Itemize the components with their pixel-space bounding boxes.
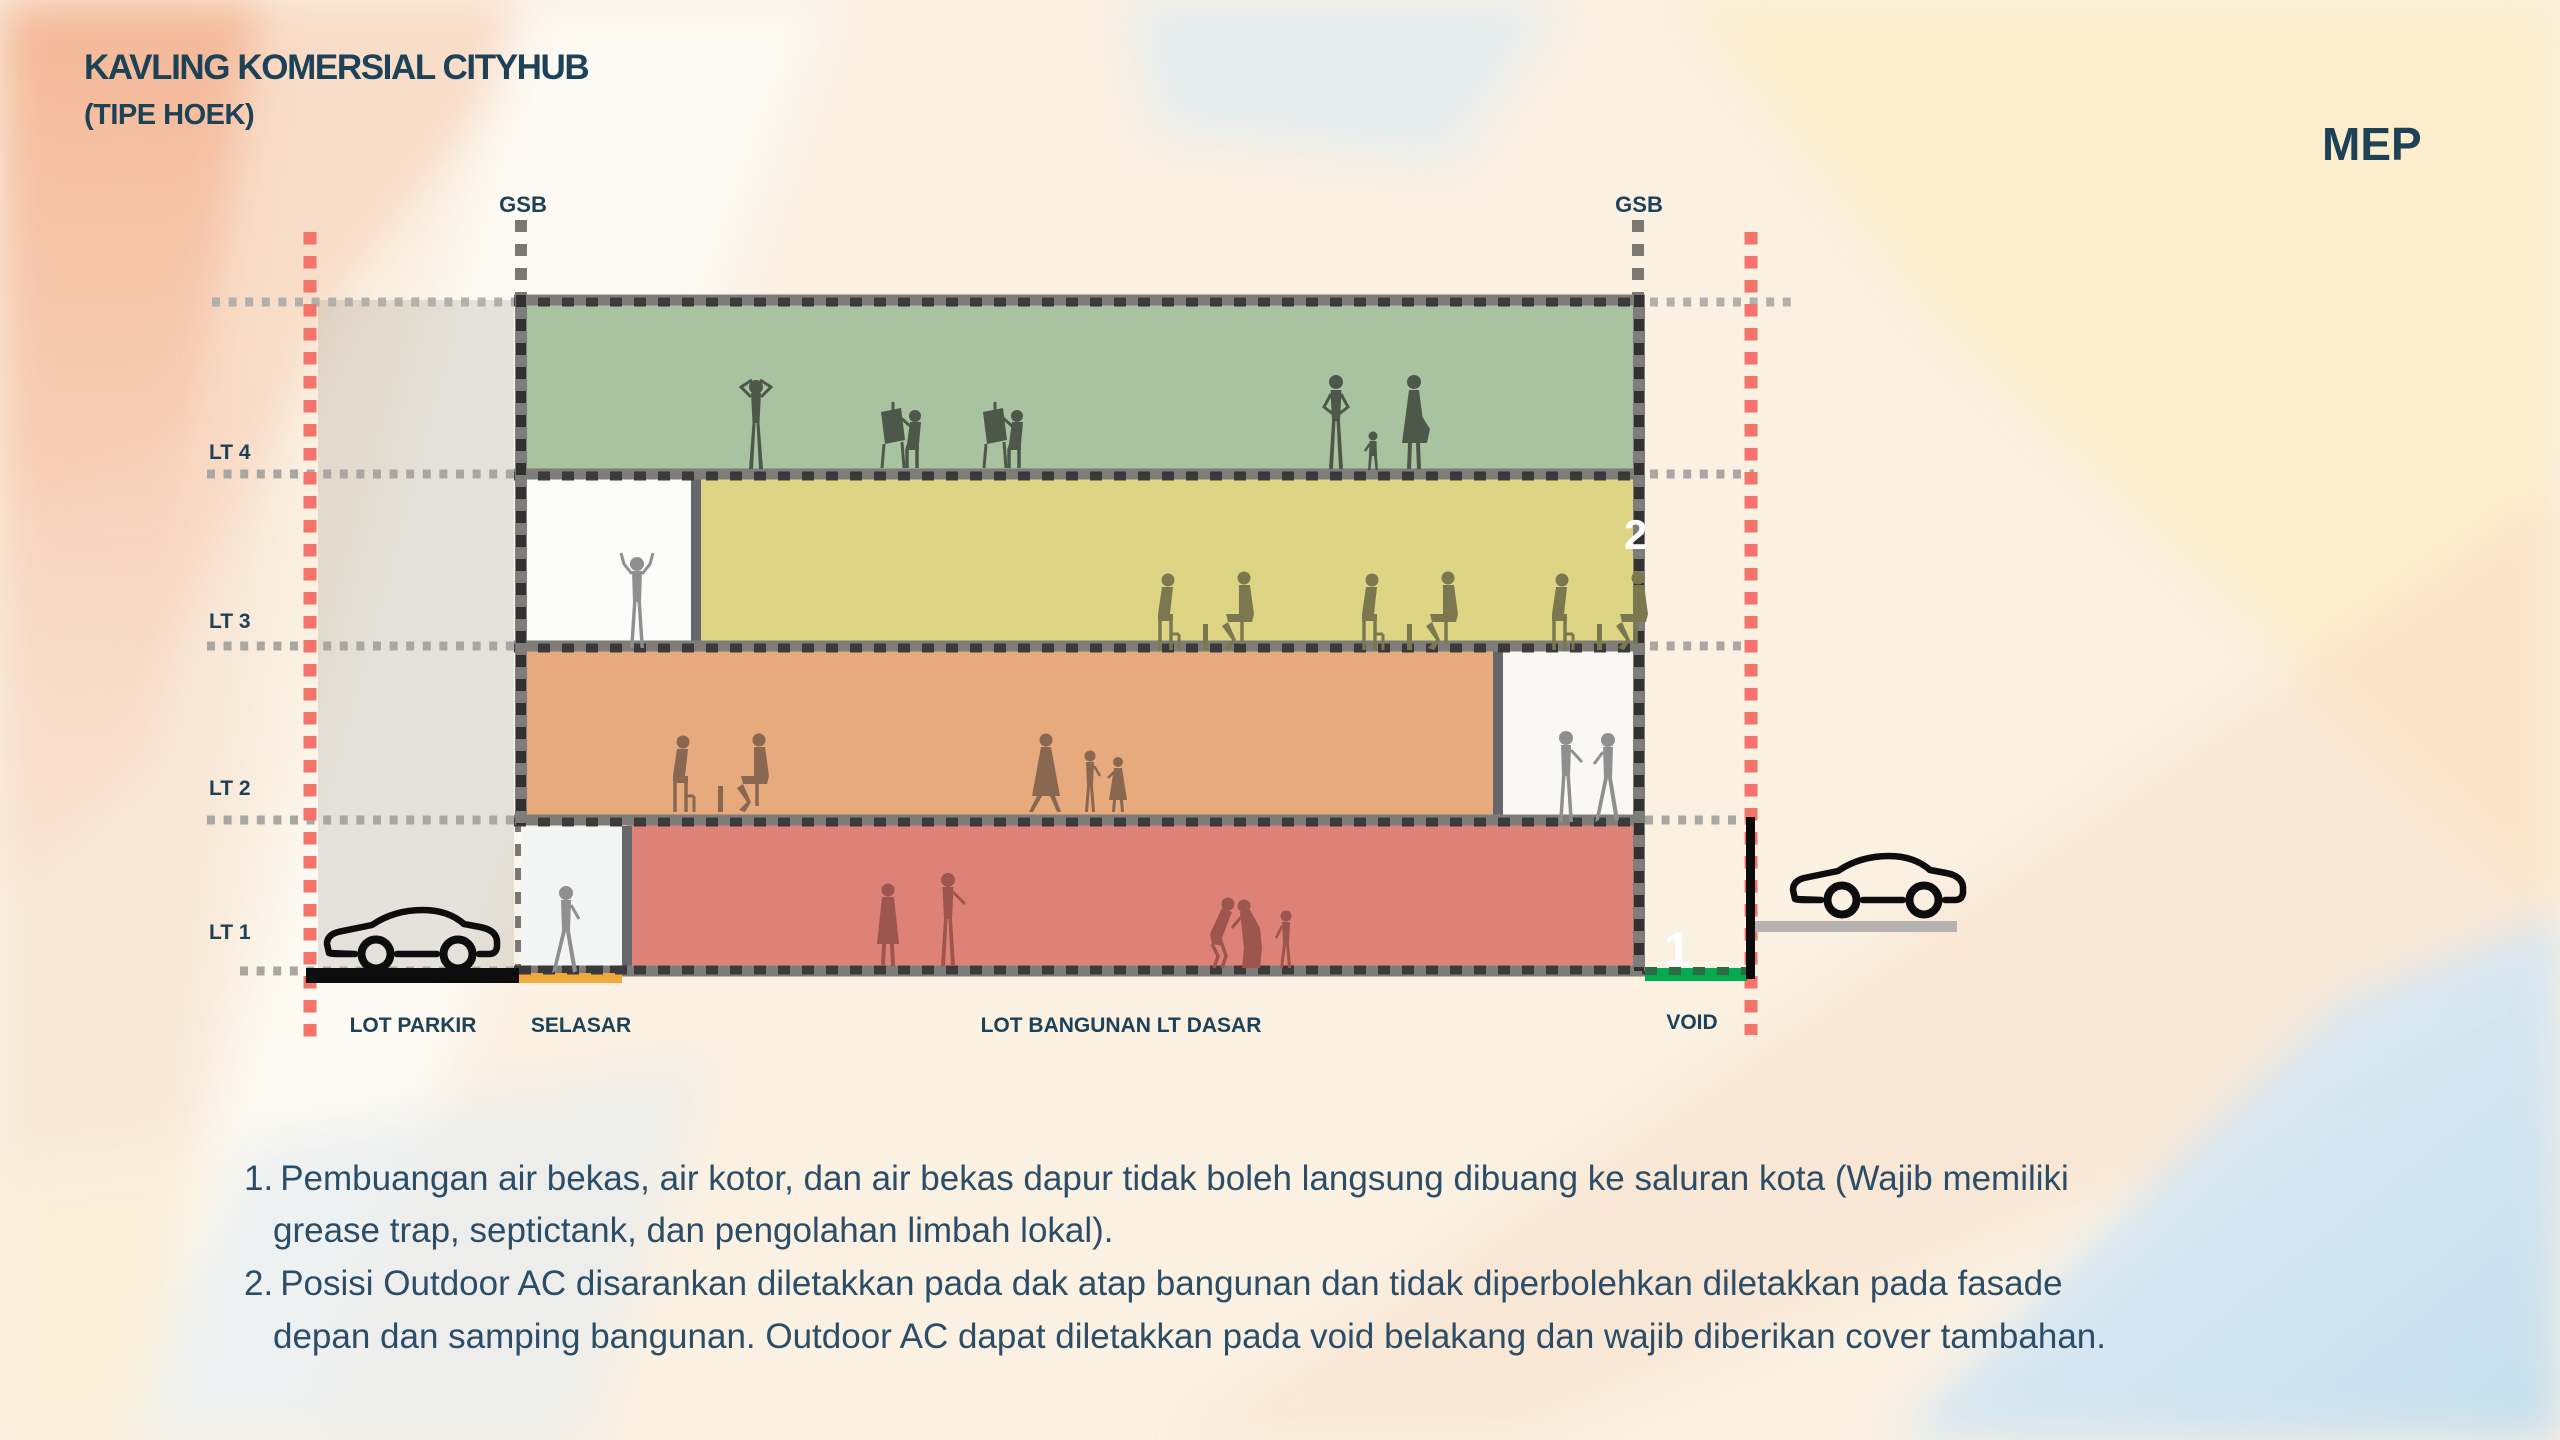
svg-text:1: 1 (1664, 924, 1691, 977)
svg-text:GSB: GSB (499, 192, 547, 217)
svg-text:LT 1: LT 1 (209, 921, 251, 944)
svg-text:grease trap, septictank, dan p: grease trap, septictank, dan pengolahan … (273, 1211, 1114, 1250)
svg-text:depan dan samping bangunan. Ou: depan dan samping bangunan. Outdoor AC d… (273, 1317, 2106, 1356)
svg-text:SELASAR: SELASAR (531, 1014, 631, 1037)
svg-text:(TIPE HOEK): (TIPE HOEK) (84, 99, 254, 131)
svg-text:1. Pembuangan air bekas, air k: 1. Pembuangan air bekas, air kotor, dan … (244, 1159, 2069, 1198)
svg-text:2: 2 (1624, 511, 1647, 558)
svg-text:LT 2: LT 2 (209, 777, 251, 800)
svg-text:VOID: VOID (1666, 1011, 1717, 1034)
svg-text:LOT PARKIR: LOT PARKIR (350, 1014, 477, 1037)
svg-text:GSB: GSB (1615, 192, 1663, 217)
svg-text:LT 4: LT 4 (209, 441, 251, 464)
svg-text:MEP: MEP (2322, 118, 2422, 170)
svg-text:LOT BANGUNAN LT DASAR: LOT BANGUNAN LT DASAR (981, 1014, 1262, 1037)
svg-text:LT 3: LT 3 (209, 610, 251, 633)
svg-text:2. Posisi Outdoor AC disaranka: 2. Posisi Outdoor AC disarankan diletakk… (244, 1264, 2063, 1303)
svg-text:KAVLING KOMERSIAL CITYHUB: KAVLING KOMERSIAL CITYHUB (84, 48, 588, 87)
